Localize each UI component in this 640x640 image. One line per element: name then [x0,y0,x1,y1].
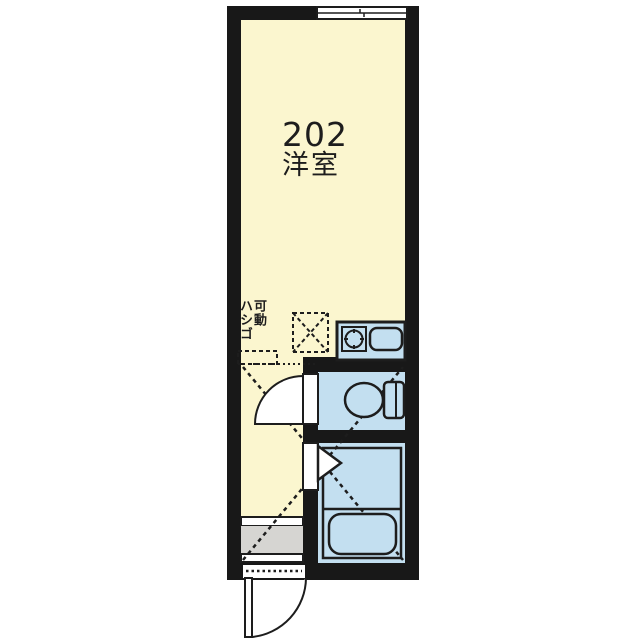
floor-plan-drawing [0,0,640,640]
kitchen-counter [337,322,405,360]
entrance-door-leaf [245,578,252,637]
entry-step-edge-2 [241,554,303,562]
wall-toilet-bath [303,430,405,443]
room-number-label: 202 [282,118,348,152]
sliding-window-icon [317,7,407,19]
entry-step-edge [241,517,303,526]
entrance-door [243,565,306,637]
room-type-label: 洋室 [282,152,348,180]
floor-plan-canvas: 202 洋室 可動 ハシゴ [0,0,640,640]
wall-left [227,6,241,580]
room-label: 202 洋室 [282,118,348,179]
wall-right [405,6,419,580]
sink-icon [370,328,402,350]
entrance-door-swing [252,578,306,637]
toilet-icon [345,382,404,418]
bathtub-icon [329,514,396,554]
loft-ladder-label: 可動 ハシゴ [237,299,265,351]
toilet-door-leaf [303,374,318,424]
